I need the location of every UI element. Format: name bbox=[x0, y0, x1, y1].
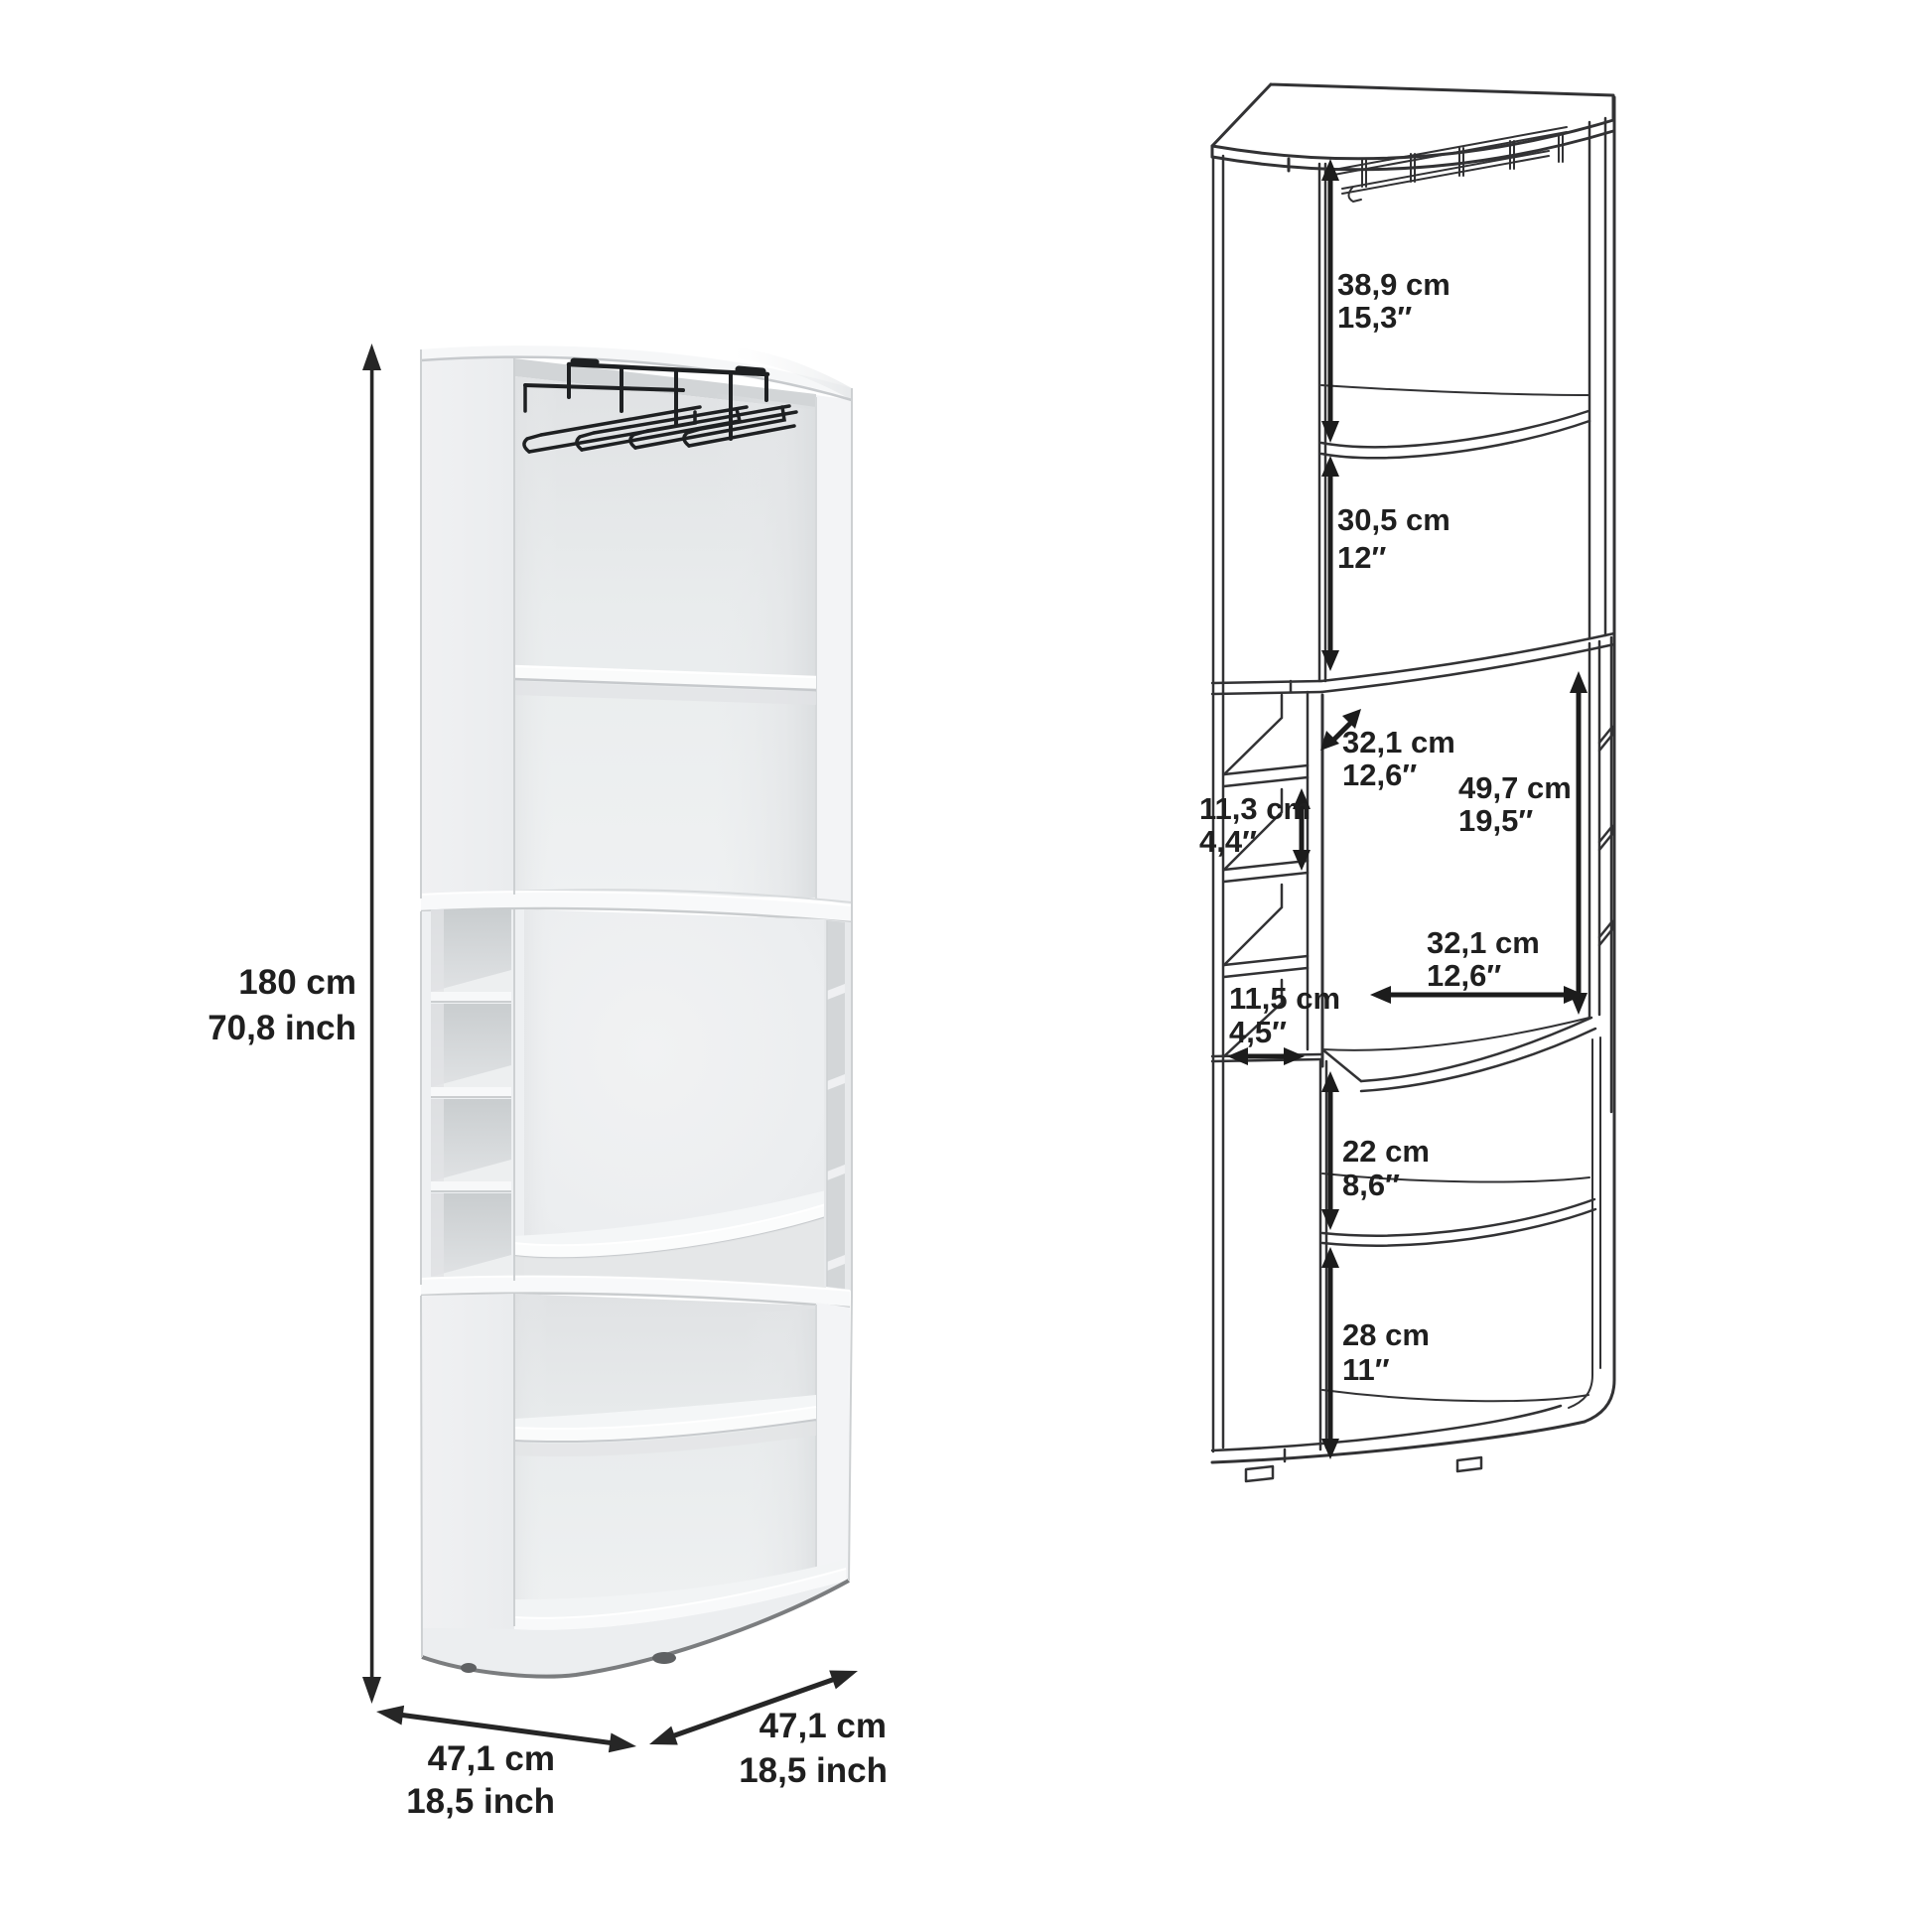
svg-text:38,9 cm: 38,9 cm bbox=[1337, 267, 1450, 302]
svg-text:4,4″: 4,4″ bbox=[1199, 824, 1257, 859]
svg-text:19,5″: 19,5″ bbox=[1458, 803, 1533, 838]
svg-text:11,3 cm: 11,3 cm bbox=[1199, 791, 1311, 826]
svg-text:11″: 11″ bbox=[1342, 1352, 1390, 1387]
svg-text:47,1 cm: 47,1 cm bbox=[759, 1707, 887, 1745]
svg-text:8,6″: 8,6″ bbox=[1342, 1168, 1400, 1202]
svg-text:12″: 12″ bbox=[1337, 540, 1386, 575]
svg-text:15,3″: 15,3″ bbox=[1337, 300, 1412, 335]
svg-text:30,5 cm: 30,5 cm bbox=[1337, 502, 1450, 537]
svg-text:18,5 inch: 18,5 inch bbox=[739, 1751, 888, 1790]
svg-text:18,5 inch: 18,5 inch bbox=[406, 1782, 555, 1821]
svg-text:22 cm: 22 cm bbox=[1342, 1134, 1430, 1169]
svg-text:70,8 inch: 70,8 inch bbox=[207, 1009, 356, 1047]
svg-text:11,5 cm: 11,5 cm bbox=[1229, 981, 1340, 1016]
svg-text:49,7 cm: 49,7 cm bbox=[1458, 770, 1572, 805]
svg-text:180 cm: 180 cm bbox=[238, 963, 356, 1002]
svg-text:32,1 cm: 32,1 cm bbox=[1427, 925, 1540, 960]
svg-text:4,5″: 4,5″ bbox=[1229, 1015, 1287, 1049]
svg-text:12,6″: 12,6″ bbox=[1342, 758, 1417, 792]
svg-text:32,1 cm: 32,1 cm bbox=[1342, 725, 1455, 759]
svg-text:28 cm: 28 cm bbox=[1342, 1317, 1430, 1352]
svg-text:47,1 cm: 47,1 cm bbox=[428, 1739, 555, 1778]
svg-text:12,6″: 12,6″ bbox=[1427, 958, 1501, 993]
